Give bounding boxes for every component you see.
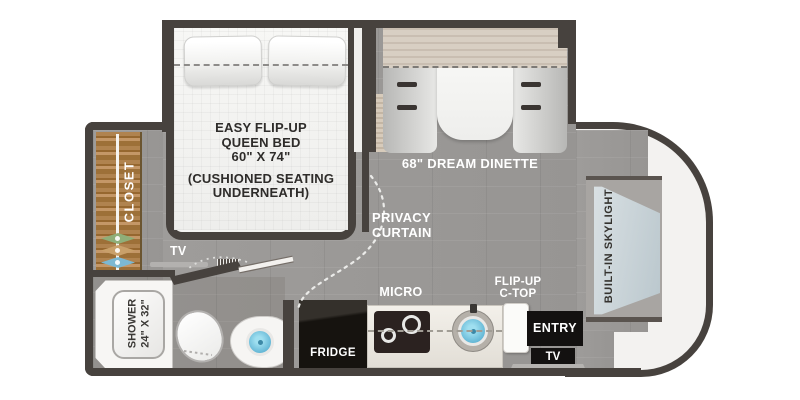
bed-label-line: QUEEN BED [174,136,348,151]
micro-label: MICRO [375,285,427,299]
bed-label-line: (CUSHIONED SEATING [174,172,348,187]
dinette-slide-top [383,28,567,68]
wall-bed-left [162,20,170,132]
fridge-label: FRIDGE [299,347,367,359]
seat-belt-icon [521,105,541,110]
entry-tv-box: TV [531,348,575,366]
seat-belt-icon [397,105,417,110]
skylight-panel [586,176,662,322]
faucet-icon [470,304,477,313]
tv-mount-bar [150,262,208,267]
flip-up-countertop [503,303,529,353]
shower-line: 24" X 32" [139,279,152,369]
pillow-right [268,35,347,86]
bed-slide-line [174,64,348,66]
bed-label-line: UNDERNEATH) [174,186,348,201]
wall-bathroom [93,270,175,277]
privacy-curtain-label: PRIVACY CURTAIN [372,210,432,240]
shower-line: SHOWER [127,279,140,369]
rv-floorplan: EASY FLIP-UP QUEEN BED 60" X 74" (CUSHIO… [0,0,800,400]
dinette-label: 68" DREAM DINETTE [395,156,545,171]
tv-bracket [217,259,239,269]
skylight-label: BUILT-IN SKYLIGHT [603,171,615,321]
bathroom-sink-bowl [246,328,274,356]
entry-box: ENTRY [527,311,583,346]
wall-divider-thin [362,150,369,232]
wall-bottom [85,368,641,376]
wall-divider [362,20,376,152]
bed-label: EASY FLIP-UP QUEEN BED 60" X 74" (CUSHIO… [174,121,348,201]
flip-up-label: FLIP-UP C-TOP [488,276,548,300]
bed-label-line: EASY FLIP-UP [174,121,348,136]
pillow-left [184,35,263,86]
shower-label: SHOWER 24" X 32" [127,279,152,369]
privacy-line: PRIVACY [372,210,432,225]
seat-belt-icon [521,82,541,87]
dinette-slide-line [383,66,567,68]
wall-dinette-right [568,28,576,124]
bed-label-line: 60" X 74" [174,150,348,165]
counter-dash-line [368,330,502,332]
flip-up-line: FLIP-UP [488,276,548,288]
tv-bedroom-label: TV [170,244,187,258]
closet-label: CLOSET [122,122,137,262]
wall-left [85,122,93,376]
privacy-line: CURTAIN [372,225,432,240]
seat-belt-icon [397,82,417,87]
flip-up-line: C-TOP [488,288,548,300]
wall-kitchen-divider [283,300,294,368]
